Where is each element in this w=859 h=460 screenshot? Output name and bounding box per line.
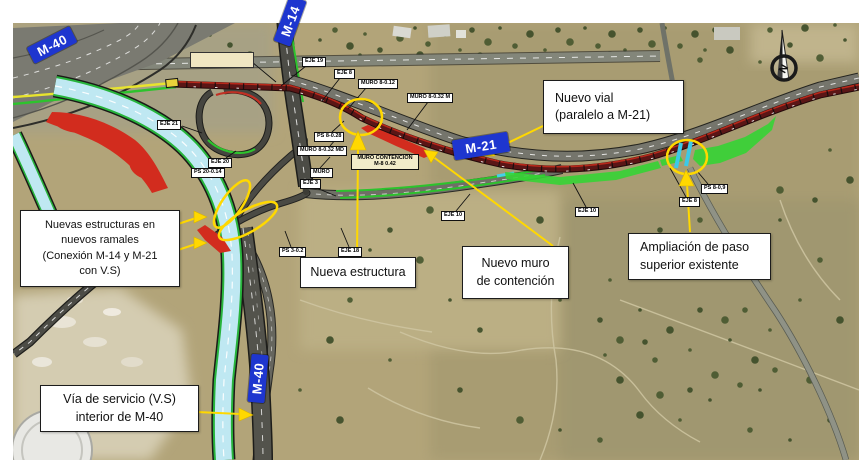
annotated-aerial-plan: N M-40 M-14 M-21 M-40 Nuevas estructuras…: [0, 0, 859, 460]
callout-line: Nueva estructura: [301, 264, 415, 282]
callout-via-servicio: Vía de servicio (V.S) interior de M-40: [40, 385, 199, 432]
label-muro-contencion: MURO CONTENCIÓN M-8 0.42: [351, 154, 419, 170]
callout-line: Ampliación de paso: [640, 239, 766, 257]
label-eje8-right: EJE 8: [679, 197, 700, 207]
label-muro-8-032md: MURO 8-0.32 MD: [297, 146, 347, 156]
callout-nuevo-vial: Nuevo vial (paralelo a M-21): [543, 80, 684, 134]
callout-line: superior existente: [640, 257, 766, 275]
label-ps-8-09: PS 8-0,9: [701, 184, 728, 194]
label-eje20: EJE 20: [208, 158, 232, 168]
label-eje19: EJE 19: [302, 57, 326, 67]
callout-nuevas-estructuras: Nuevas estructuras en nuevos ramales (Co…: [20, 210, 180, 287]
callout-line: con V.S): [21, 264, 179, 279]
label-line: M-8 0.42: [354, 162, 416, 168]
label-eje18: EJE 18: [338, 247, 362, 257]
label-eje21: EJE 21: [157, 120, 181, 130]
callout-line: Vía de servicio (V.S): [41, 391, 198, 409]
callout-ampliacion: Ampliación de paso superior existente: [628, 233, 771, 280]
label-ps-20-014: PS 20-0.14: [191, 168, 225, 178]
callout-line: (paralelo a M-21): [555, 107, 679, 125]
label-eje3: EJE 3: [300, 179, 321, 189]
callout-line: (Conexión M-14 y M-21: [21, 249, 179, 264]
callout-line: Nuevo muro: [463, 255, 568, 273]
callout-line: de contención: [463, 273, 568, 291]
callout-line: interior de M-40: [41, 409, 198, 427]
label-eje10-right: EJE 10: [575, 207, 599, 217]
label-muro-8-032m: MURO 8-0.32 M: [407, 93, 453, 103]
label-muro-8-012: MURO 8-0.12: [358, 79, 398, 89]
callout-nueva-estructura: Nueva estructura: [300, 257, 416, 288]
blank-annotation-box: [190, 52, 254, 68]
callout-line: Nuevo vial: [555, 90, 679, 108]
label-ps-8-028: PS 8-0.28: [314, 132, 344, 142]
callout-line: Nuevas estructuras en: [21, 218, 179, 233]
label-eje10-left: EJE 10: [441, 211, 465, 221]
label-muro: MURO: [310, 168, 333, 178]
label-eje8-top: EJE 8: [334, 69, 355, 79]
callout-nuevo-muro: Nuevo muro de contención: [462, 246, 569, 299]
callout-line: nuevos ramales: [21, 233, 179, 248]
label-ps-3-02: PS 3-0.2: [279, 247, 306, 257]
